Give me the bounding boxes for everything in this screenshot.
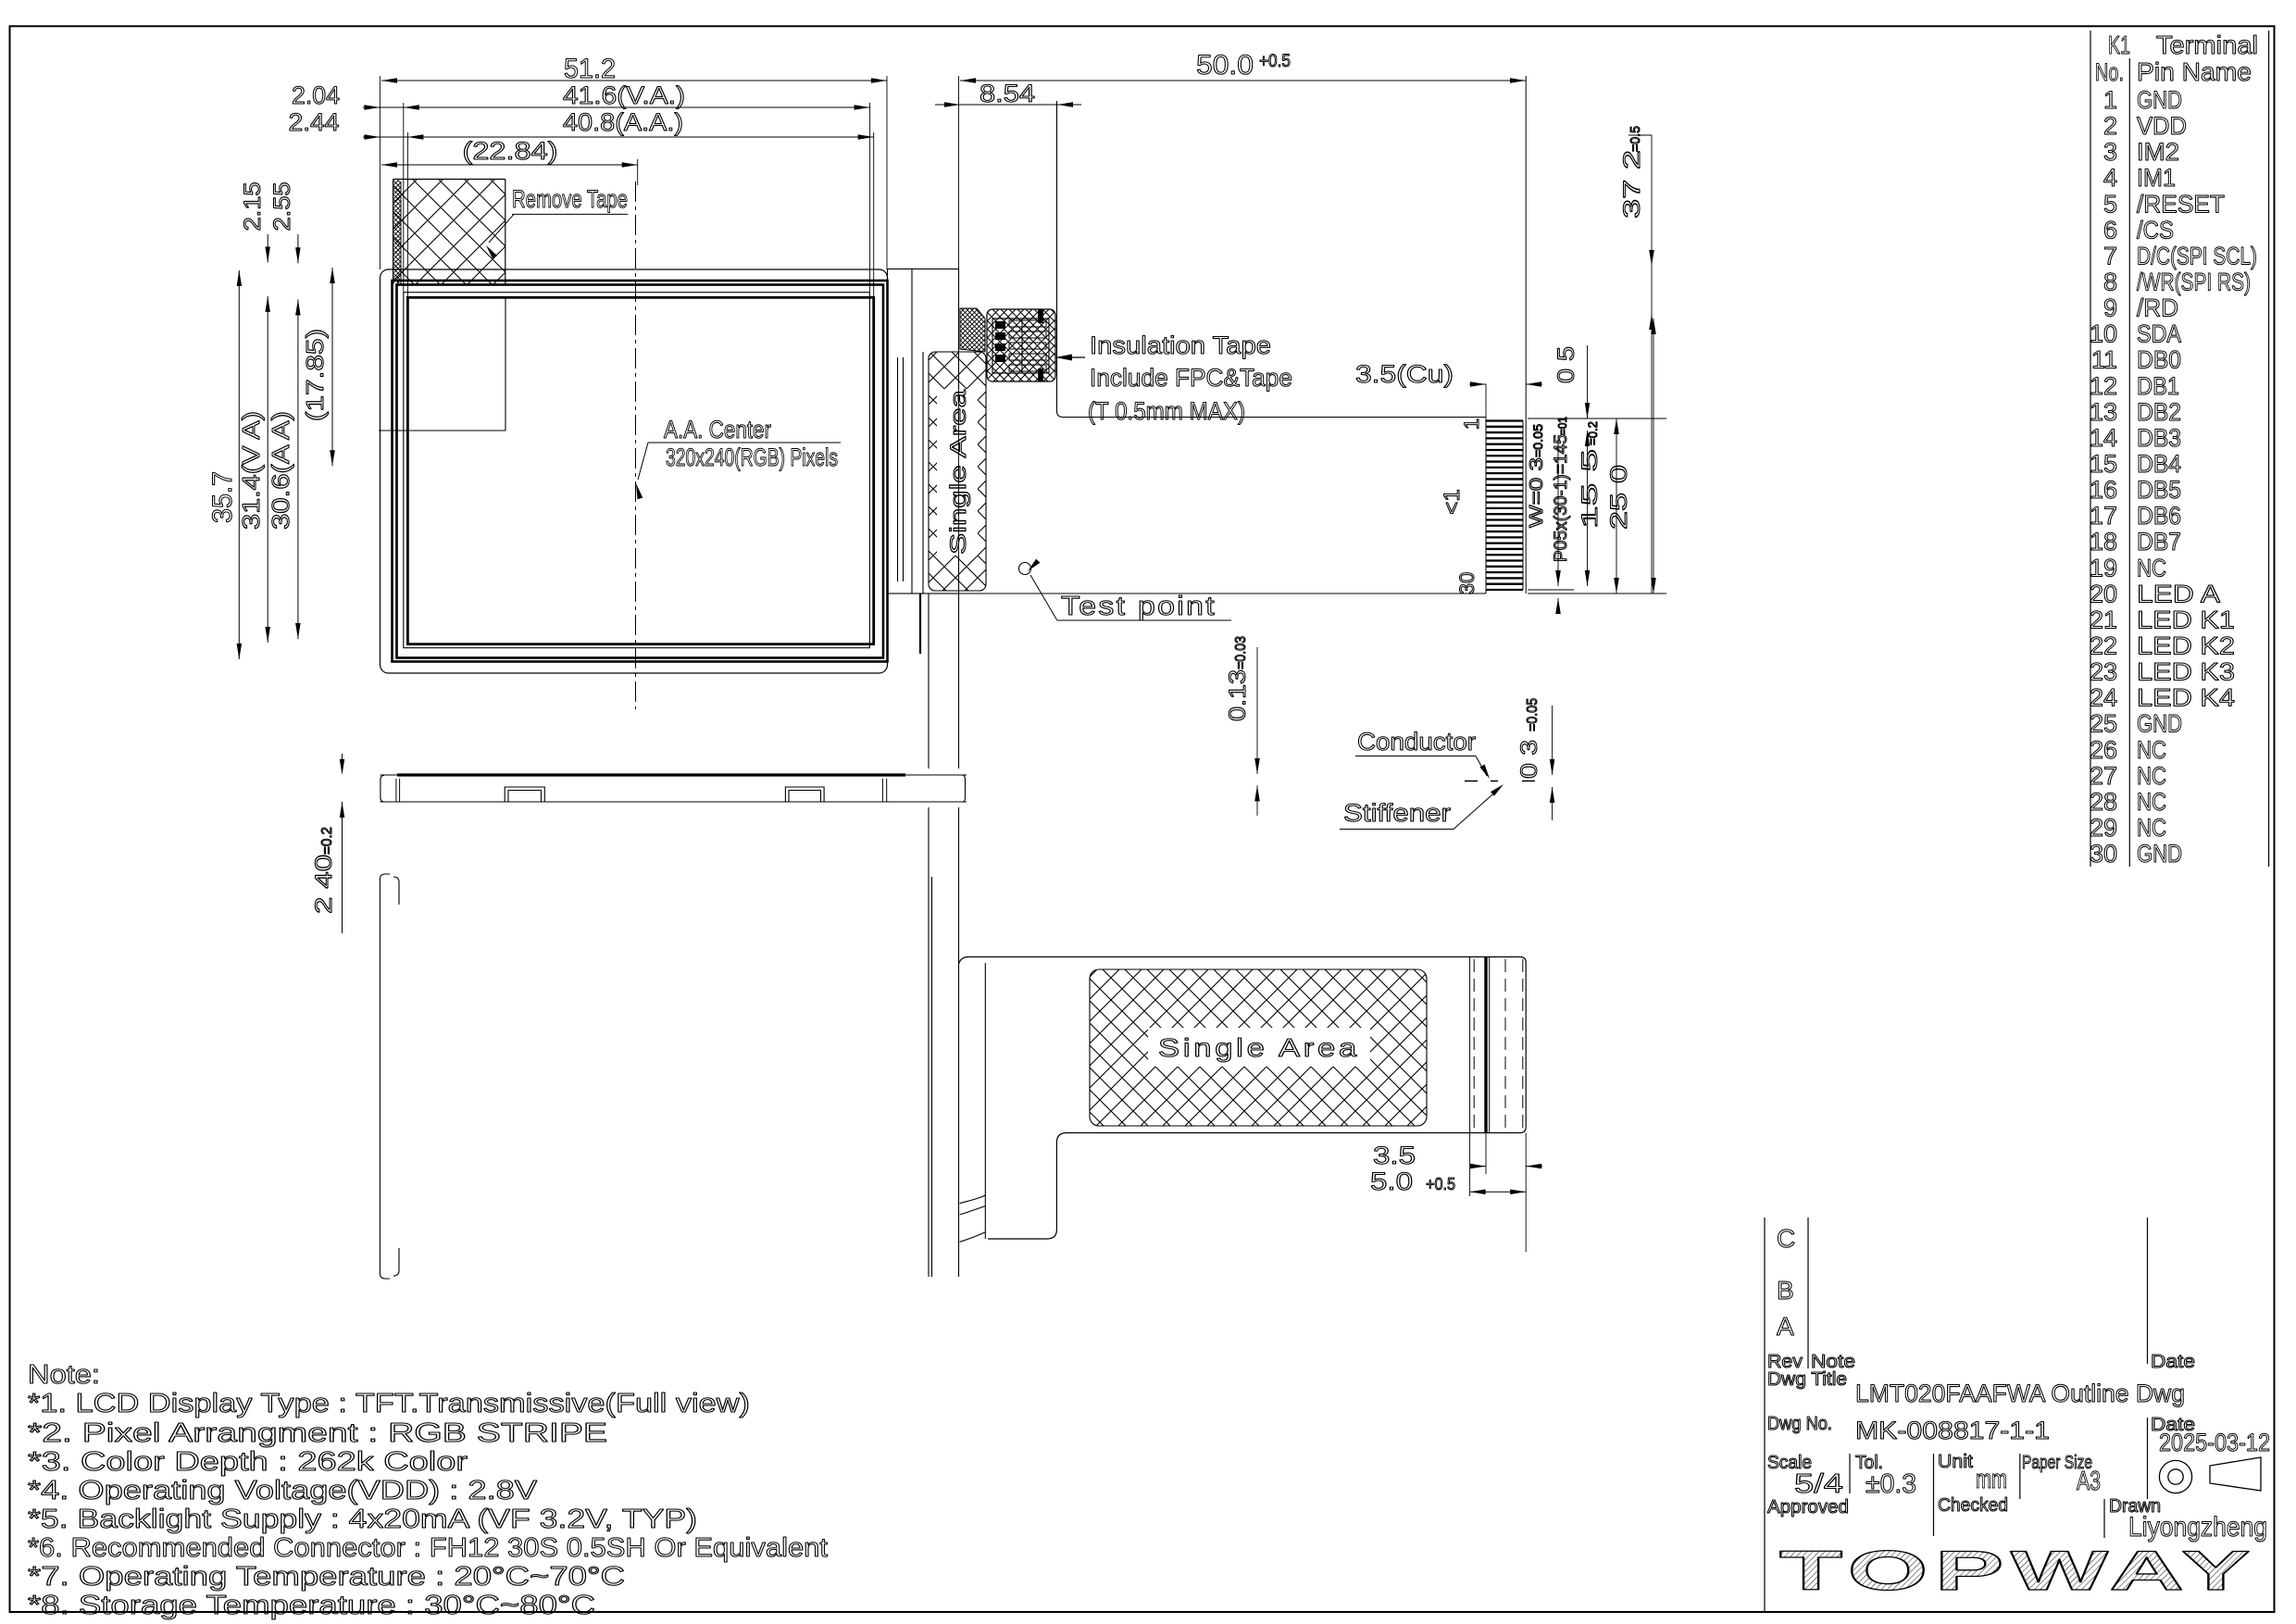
svg-text:2 40: 2 40 bbox=[311, 855, 337, 914]
svg-text:2.44: 2.44 bbox=[289, 108, 340, 136]
svg-text:12: 12 bbox=[2090, 372, 2117, 400]
svg-text:35.7: 35.7 bbox=[207, 471, 238, 523]
svg-text:21: 21 bbox=[2090, 606, 2117, 633]
svg-text:K1: K1 bbox=[2108, 31, 2130, 59]
svg-text:29: 29 bbox=[2090, 814, 2117, 842]
svg-text:MK-008817-1-1: MK-008817-1-1 bbox=[1855, 1417, 2050, 1444]
svg-text:/WR(SPI RS): /WR(SPI RS) bbox=[2137, 268, 2251, 295]
svg-text:20: 20 bbox=[2090, 580, 2117, 607]
svg-text:Dwg Title: Dwg Title bbox=[1767, 1369, 1847, 1390]
svg-text:Note:: Note: bbox=[28, 1360, 100, 1390]
svg-text:*5. Backlight Supply : 4x20mA: *5. Backlight Supply : 4x20mA (VF 3.2V, … bbox=[28, 1505, 697, 1534]
svg-text:NC: NC bbox=[2137, 554, 2166, 581]
svg-text:/RD: /RD bbox=[2137, 294, 2178, 322]
svg-text:=0.2: =0.2 bbox=[1585, 421, 1600, 445]
svg-text:0 5: 0 5 bbox=[1554, 346, 1579, 383]
svg-text:(17.85): (17.85) bbox=[301, 329, 329, 421]
svg-text:4: 4 bbox=[2103, 164, 2117, 192]
svg-text:30: 30 bbox=[2090, 840, 2117, 868]
svg-text:±0.3: ±0.3 bbox=[1865, 1469, 1916, 1499]
svg-text:No.: No. bbox=[2095, 58, 2124, 86]
svg-text:A.A. Center: A.A. Center bbox=[664, 416, 771, 443]
svg-text:Checked: Checked bbox=[1938, 1495, 2008, 1516]
svg-text:=01: =01 bbox=[1555, 417, 1569, 435]
svg-text:DB3: DB3 bbox=[2137, 424, 2181, 452]
svg-text:5/4: 5/4 bbox=[1794, 1469, 1843, 1499]
svg-text:51.2: 51.2 bbox=[564, 54, 616, 84]
svg-text:7: 7 bbox=[2103, 242, 2117, 269]
svg-text:W=0 3: W=0 3 bbox=[1527, 457, 1547, 528]
svg-text:50.0: 50.0 bbox=[1196, 50, 1254, 81]
svg-text:*7. Operating Temperature : 2: *7. Operating Temperature : 20°C~70°C bbox=[28, 1562, 625, 1592]
svg-text:5.0: 5.0 bbox=[1370, 1168, 1413, 1195]
svg-text:NC: NC bbox=[2137, 762, 2166, 790]
svg-text:2.55: 2.55 bbox=[269, 182, 295, 231]
svg-text:VDD: VDD bbox=[2137, 112, 2187, 140]
svg-text:15 5: 15 5 bbox=[1578, 449, 1603, 529]
svg-text:8: 8 bbox=[2103, 268, 2117, 295]
svg-text:=0.2: =0.2 bbox=[319, 827, 335, 855]
svg-text:IM2: IM2 bbox=[2137, 138, 2179, 166]
svg-text:+0.5: +0.5 bbox=[1259, 52, 1291, 71]
svg-text:*6. Recommended Connector : FH: *6. Recommended Connector : FH12 30S 0.5… bbox=[28, 1533, 828, 1563]
svg-text:3.5: 3.5 bbox=[1373, 1142, 1416, 1169]
svg-text:22: 22 bbox=[2090, 631, 2117, 659]
svg-text:Terminal: Terminal bbox=[2156, 31, 2258, 59]
svg-text:Date: Date bbox=[2151, 1352, 2195, 1372]
svg-text:NC: NC bbox=[2137, 788, 2166, 816]
svg-text:*3. Color Depth : 262k Color: *3. Color Depth : 262k Color bbox=[28, 1447, 468, 1477]
svg-text:8.54: 8.54 bbox=[980, 80, 1035, 107]
svg-text:GND: GND bbox=[2137, 840, 2182, 868]
svg-text:LED A: LED A bbox=[2137, 580, 2220, 607]
svg-text:NC: NC bbox=[2137, 736, 2166, 764]
svg-text:+0.5: +0.5 bbox=[1426, 1175, 1455, 1193]
svg-text:TOPWAY: TOPWAY bbox=[1779, 1540, 2257, 1602]
svg-text:Single Area: Single Area bbox=[1158, 1033, 1360, 1062]
svg-text:DB7: DB7 bbox=[2137, 528, 2181, 556]
svg-text:LED K4: LED K4 bbox=[2137, 684, 2235, 712]
svg-text:GND: GND bbox=[2137, 710, 2182, 738]
svg-text:5: 5 bbox=[2103, 190, 2117, 218]
svg-text:10: 10 bbox=[2090, 320, 2117, 348]
svg-text:2025-03-12: 2025-03-12 bbox=[2159, 1429, 2270, 1456]
svg-text:Approved: Approved bbox=[1767, 1497, 1849, 1518]
svg-text:(T 0.5mm MAX): (T 0.5mm MAX) bbox=[1088, 397, 1245, 425]
svg-text:*1. LCD Display Type : TFT.Tra: *1. LCD Display Type : TFT.Transmissive(… bbox=[28, 1389, 750, 1418]
svg-text:Unit: Unit bbox=[1938, 1452, 1973, 1472]
svg-text:14: 14 bbox=[2090, 424, 2117, 452]
svg-text:D/C(SPI SCL): D/C(SPI SCL) bbox=[2137, 242, 2257, 269]
svg-text:Remove Tape: Remove Tape bbox=[512, 185, 628, 213]
svg-text:A: A bbox=[1777, 1312, 1794, 1341]
svg-text:Conductor: Conductor bbox=[1357, 728, 1476, 756]
svg-text:DB0: DB0 bbox=[2137, 346, 2181, 374]
svg-text:Liyongzheng: Liyongzheng bbox=[2128, 1512, 2267, 1543]
svg-text:DB1: DB1 bbox=[2137, 372, 2179, 400]
svg-text:mm: mm bbox=[1976, 1465, 2007, 1494]
svg-text:Test point: Test point bbox=[1061, 592, 1217, 621]
svg-text:6: 6 bbox=[2103, 216, 2117, 244]
svg-text:LED K3: LED K3 bbox=[2137, 658, 2235, 686]
svg-text:3: 3 bbox=[2103, 138, 2117, 166]
svg-text:DB2: DB2 bbox=[2137, 398, 2181, 426]
svg-text:*2. Pixel Arrangment : RGB STR: *2. Pixel Arrangment : RGB STRIPE bbox=[28, 1418, 607, 1448]
svg-text:26: 26 bbox=[2090, 736, 2117, 764]
svg-text:3.5(Cu): 3.5(Cu) bbox=[1355, 360, 1454, 388]
svg-text:9: 9 bbox=[2103, 294, 2117, 322]
svg-text:*8. Storage Temperature : 30°: *8. Storage Temperature : 30°C~80°C bbox=[28, 1591, 595, 1620]
svg-text:Pin Name: Pin Name bbox=[2137, 57, 2252, 86]
svg-text:27: 27 bbox=[2090, 762, 2117, 790]
svg-text:25 0: 25 0 bbox=[1606, 465, 1632, 530]
svg-text:41.6(V.A.): 41.6(V.A.) bbox=[563, 81, 685, 109]
svg-text:24: 24 bbox=[2090, 684, 2117, 712]
svg-text:IM1: IM1 bbox=[2137, 164, 2176, 192]
svg-text:23: 23 bbox=[2090, 658, 2117, 686]
svg-text:Stiffener: Stiffener bbox=[1343, 799, 1451, 827]
svg-text:LMT020FAAFWA Outline Dwg: LMT020FAAFWA Outline Dwg bbox=[1855, 1380, 2185, 1407]
svg-text:P05x(30-1)=145: P05x(30-1)=145 bbox=[1552, 434, 1571, 562]
svg-text:GND: GND bbox=[2137, 86, 2182, 114]
svg-text:13: 13 bbox=[2090, 398, 2117, 426]
svg-text:11: 11 bbox=[2091, 346, 2117, 374]
svg-text:DB6: DB6 bbox=[2137, 502, 2181, 530]
svg-text:16: 16 bbox=[2090, 476, 2117, 504]
svg-text:25: 25 bbox=[2090, 710, 2117, 738]
svg-text:B: B bbox=[1777, 1276, 1794, 1305]
svg-text:C: C bbox=[1777, 1224, 1795, 1253]
svg-text:A3: A3 bbox=[2077, 1467, 2101, 1496]
svg-text:2: 2 bbox=[2103, 112, 2117, 140]
svg-text:15: 15 bbox=[2090, 450, 2117, 478]
svg-text:=0.05: =0.05 bbox=[1530, 424, 1545, 457]
svg-text:19: 19 bbox=[2090, 554, 2117, 581]
svg-text:1: 1 bbox=[1460, 418, 1483, 430]
svg-text:Include FPC&Tape: Include FPC&Tape bbox=[1090, 364, 1292, 392]
svg-text:*4. Operating Voltage(VDD) : 2: *4. Operating Voltage(VDD) : 2.8V bbox=[28, 1476, 538, 1505]
svg-text:18: 18 bbox=[2090, 528, 2117, 556]
svg-text:2.15: 2.15 bbox=[240, 182, 266, 231]
svg-text:31.4(V A): 31.4(V A) bbox=[237, 411, 265, 530]
svg-text:17: 17 bbox=[2090, 502, 2117, 530]
svg-text:/RESET: /RESET bbox=[2137, 190, 2225, 218]
svg-text:NC: NC bbox=[2137, 814, 2166, 842]
svg-text:=0.03: =0.03 bbox=[1233, 636, 1249, 669]
svg-text:SDA: SDA bbox=[2137, 320, 2181, 348]
svg-text:Dwg No.: Dwg No. bbox=[1767, 1414, 1832, 1434]
svg-text:28: 28 bbox=[2090, 788, 2117, 816]
svg-text:2.04: 2.04 bbox=[292, 81, 340, 109]
svg-text:320x240(RGB) Pixels: 320x240(RGB) Pixels bbox=[666, 443, 838, 471]
svg-text:LED K2: LED K2 bbox=[2137, 631, 2235, 659]
svg-text:0 3: 0 3 bbox=[1516, 740, 1542, 779]
svg-text:(22.84): (22.84) bbox=[463, 137, 558, 165]
svg-text:LED K1: LED K1 bbox=[2137, 606, 2235, 633]
svg-text:/CS: /CS bbox=[2137, 216, 2174, 244]
svg-text:DB5: DB5 bbox=[2137, 476, 2181, 504]
svg-text:Insulation Tape: Insulation Tape bbox=[1090, 331, 1271, 359]
svg-text:<1: <1 bbox=[1440, 489, 1465, 514]
svg-text:37 2: 37 2 bbox=[1619, 150, 1645, 219]
svg-text:30: 30 bbox=[1455, 572, 1479, 594]
svg-text:=0.05: =0.05 bbox=[1525, 698, 1541, 731]
svg-text:1: 1 bbox=[2103, 86, 2117, 114]
svg-text:0.13: 0.13 bbox=[1225, 669, 1251, 721]
svg-text:30.6(A A): 30.6(A A) bbox=[267, 411, 294, 530]
svg-text:DB4: DB4 bbox=[2137, 450, 2181, 478]
svg-text:=0.5: =0.5 bbox=[1628, 126, 1643, 152]
svg-text:40.8(A.A.): 40.8(A.A.) bbox=[563, 108, 683, 136]
